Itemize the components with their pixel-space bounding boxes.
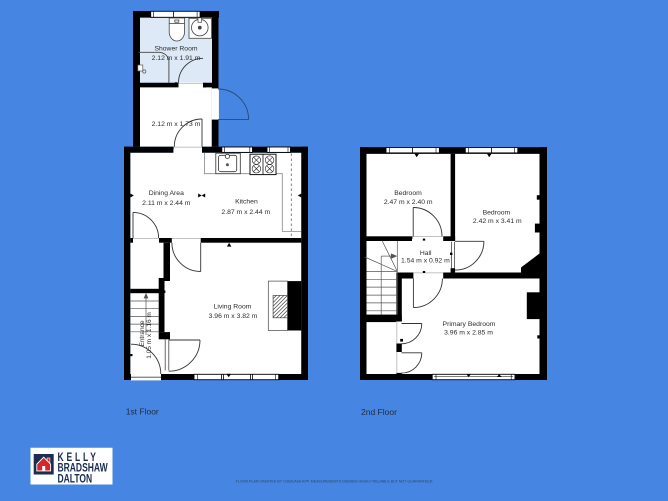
svg-text:1.05 m x 1.16 m: 1.05 m x 1.16 m [146, 312, 153, 359]
svg-text:1.54 m x 0.92 m: 1.54 m x 0.92 m [401, 257, 450, 264]
svg-text:2.42 m x 3.41 m: 2.42 m x 3.41 m [473, 218, 522, 225]
svg-text:3.96 m x 3.82 m: 3.96 m x 3.82 m [209, 313, 258, 320]
svg-text:3.96 m x 2.85 m: 3.96 m x 2.85 m [444, 330, 493, 337]
svg-text:Kitchen: Kitchen [235, 199, 258, 206]
svg-text:2.12 m x 1.73 m: 2.12 m x 1.73 m [152, 121, 201, 128]
svg-text:Shower Room: Shower Room [154, 46, 197, 53]
svg-text:Living Room: Living Room [214, 304, 252, 311]
svg-text:Dining Area: Dining Area [149, 190, 184, 197]
svg-text:2.11 m x 2.44 m: 2.11 m x 2.44 m [142, 200, 191, 207]
svg-text:2.87 m x 2.44 m: 2.87 m x 2.44 m [221, 209, 270, 216]
svg-text:2.47 m x 2.40 m: 2.47 m x 2.40 m [384, 199, 433, 206]
svg-text:Bedroom: Bedroom [483, 209, 511, 216]
svg-text:Primary Bedroom: Primary Bedroom [443, 321, 496, 328]
svg-text:FLOOR PLAN CREATED BY CUBICASA: FLOOR PLAN CREATED BY CUBICASA APP. MEAS… [236, 480, 434, 484]
svg-text:1st Floor: 1st Floor [126, 407, 159, 417]
svg-text:Bedroom: Bedroom [394, 190, 422, 197]
svg-text:2nd Floor: 2nd Floor [361, 407, 397, 417]
svg-text:Hall: Hall [420, 250, 432, 257]
svg-text:DALTON: DALTON [58, 473, 93, 486]
svg-text:2.12 m x 1.91 m: 2.12 m x 1.91 m [152, 55, 201, 62]
svg-text:Entrance: Entrance [139, 320, 146, 346]
